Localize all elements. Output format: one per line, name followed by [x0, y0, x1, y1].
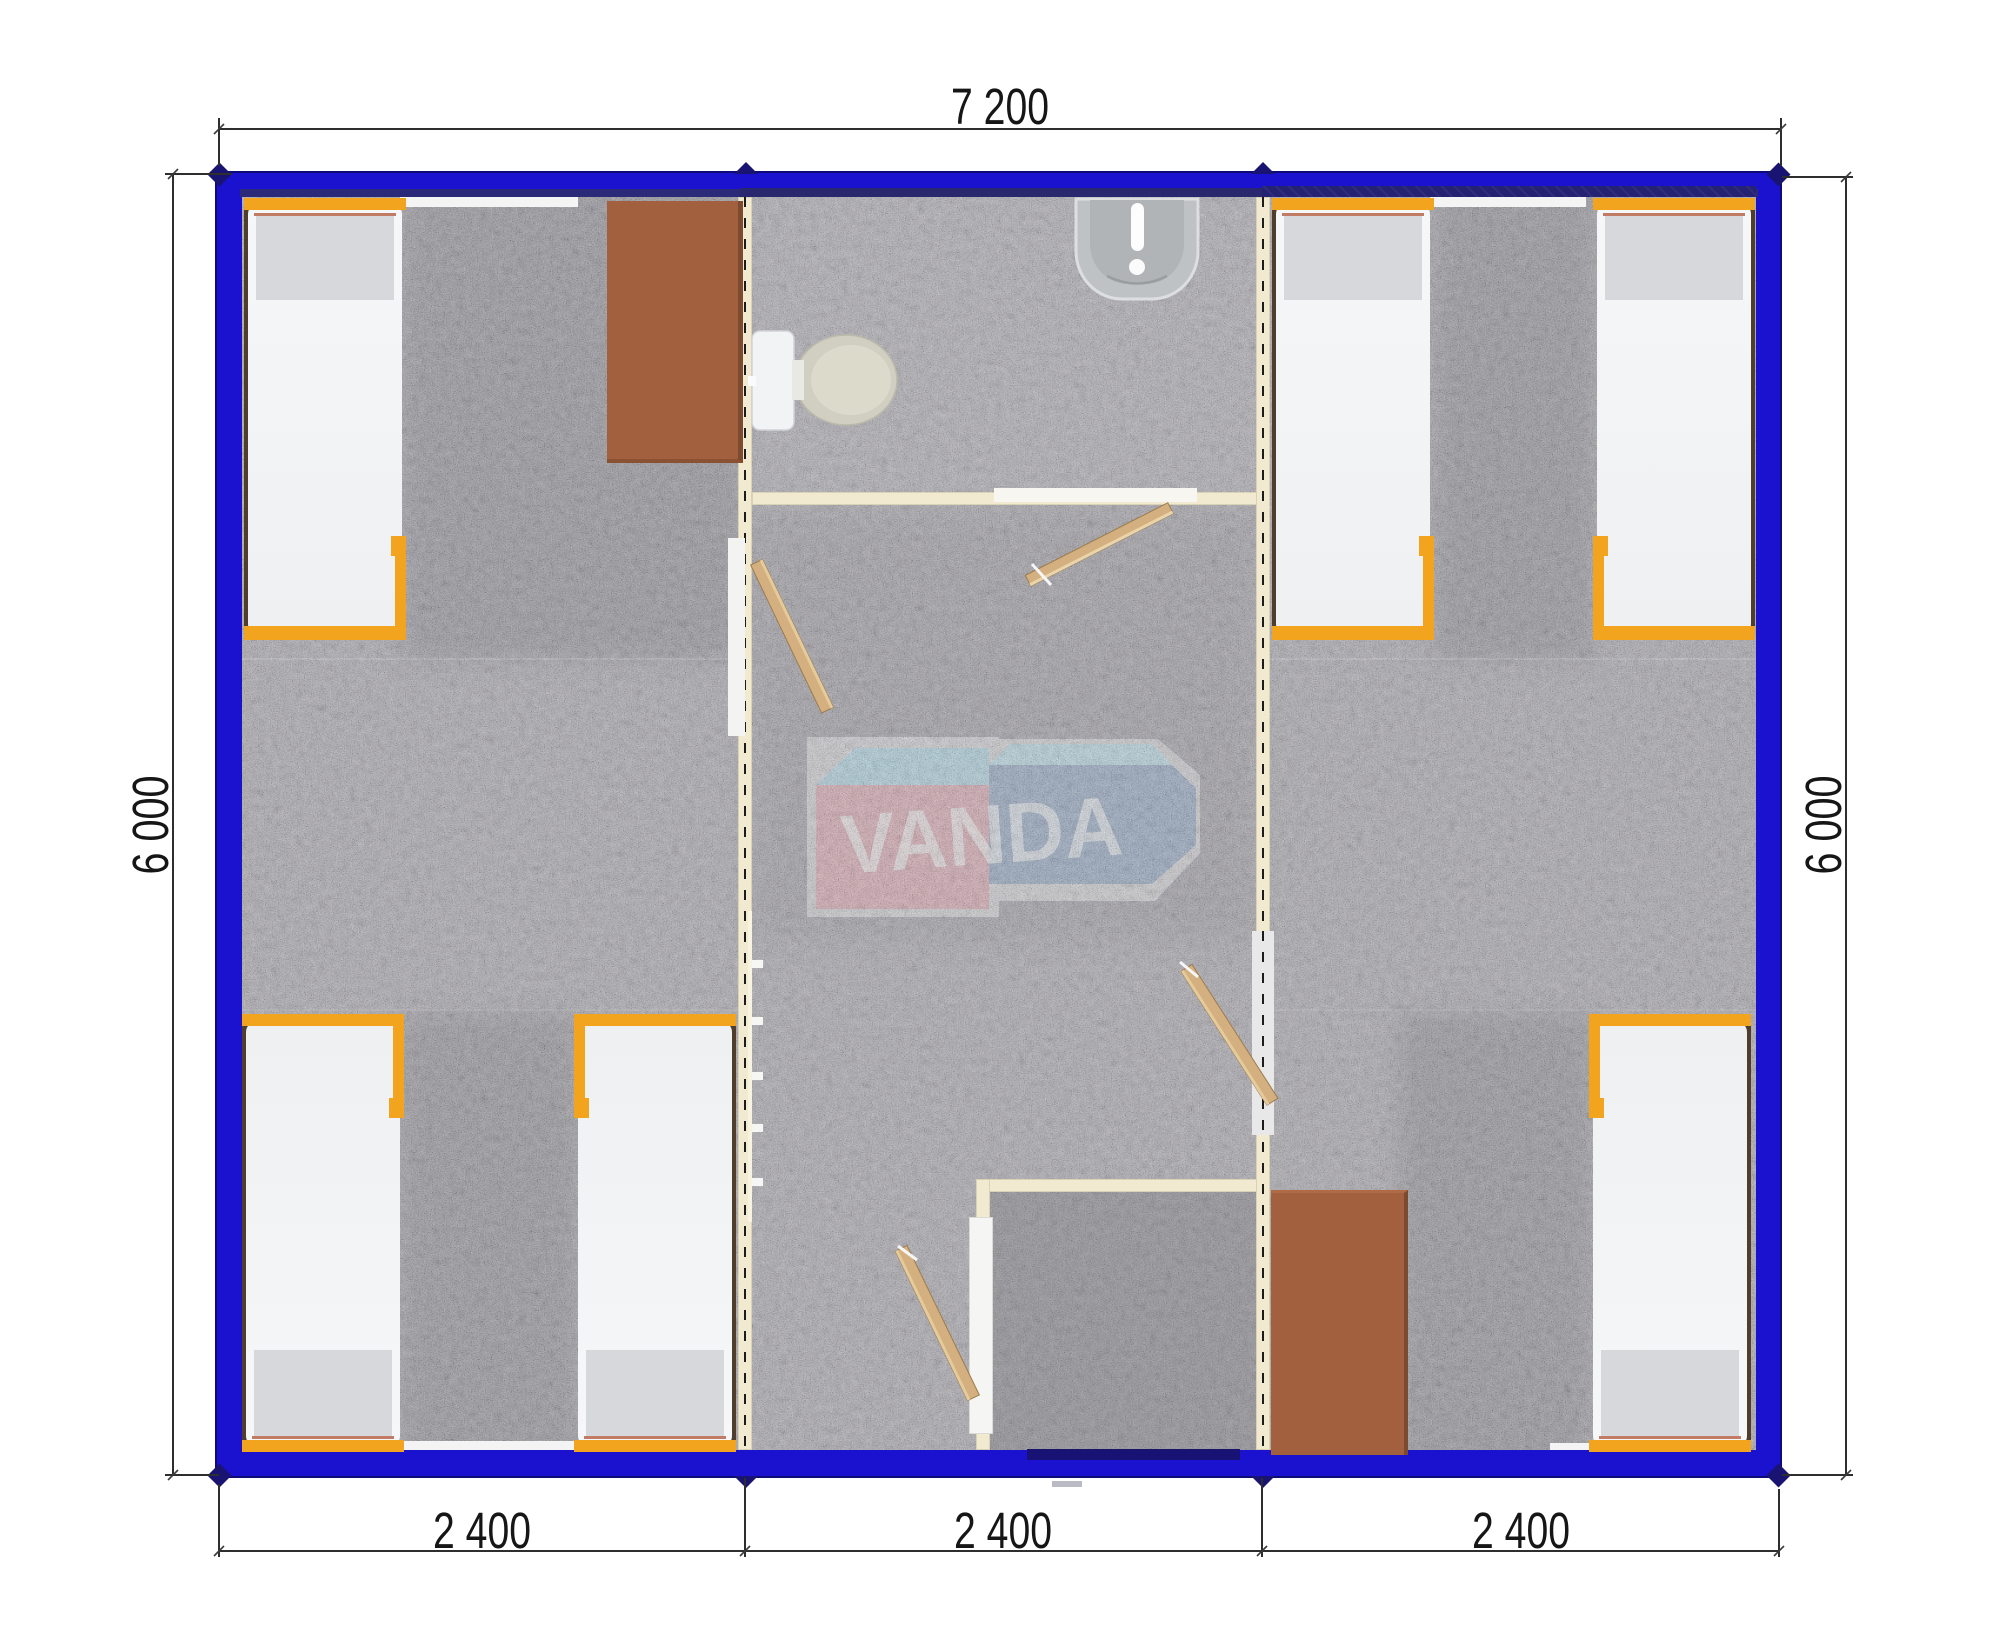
svg-text:7 200: 7 200 — [951, 78, 1049, 135]
svg-text:2 400: 2 400 — [433, 1502, 531, 1559]
svg-text:2 400: 2 400 — [954, 1502, 1052, 1559]
svg-text:6 000: 6 000 — [122, 776, 179, 875]
svg-text:2 400: 2 400 — [1472, 1502, 1570, 1559]
svg-text:6 000: 6 000 — [1795, 776, 1852, 875]
